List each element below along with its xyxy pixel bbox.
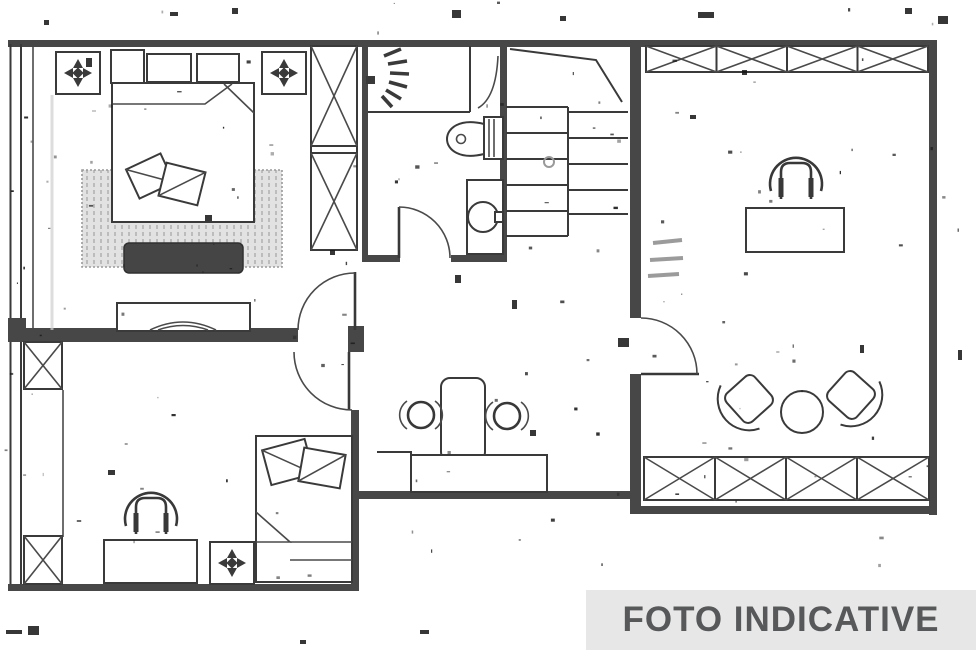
wall-right: [929, 40, 937, 515]
door-arc-icon: [298, 273, 355, 330]
wall-living-left-b: [630, 374, 641, 514]
room-staircase: [506, 49, 628, 236]
wardrobe-x-icon: [311, 46, 357, 250]
door-arc-icon: [399, 207, 450, 258]
window-x-strip-icon: [646, 46, 928, 72]
room-kitchenette: [377, 378, 547, 492]
stair-steps-icon: [506, 107, 628, 236]
bench-icon: [124, 243, 243, 273]
office-chair-icon: [770, 158, 822, 199]
foto-indicative-banner: FOTO INDICATIVE: [586, 590, 976, 650]
desk-icon: [104, 540, 197, 583]
office-chair-icon: [125, 493, 177, 534]
landing-break-line-icon: [510, 49, 622, 102]
room-bedroom-second: [24, 342, 352, 584]
room-bedroom-master: [52, 46, 357, 331]
window-x-post-icon: [24, 342, 62, 389]
desk-icon: [746, 208, 844, 252]
dresser-icon: [117, 303, 250, 331]
dimension-scribble: [648, 240, 683, 276]
wall-bathroom-bottom-a: [362, 255, 400, 262]
stool-icon: [486, 402, 529, 430]
wall-living-left-a: [630, 44, 641, 318]
armchair-icon: [706, 365, 782, 442]
shower-screen-icon: [478, 56, 498, 108]
round-side-table-icon: [781, 391, 823, 433]
room-living: [641, 46, 929, 500]
wall-bottom-left: [8, 584, 359, 591]
foto-indicative-label: FOTO INDICATIVE: [622, 600, 939, 640]
window-x-strip-icon: [644, 457, 929, 500]
ceiling-light-icon: [262, 52, 306, 94]
floor-plan-drawing: [0, 0, 976, 650]
pillow-icon: [147, 54, 191, 82]
wall-bottom-right: [637, 506, 937, 514]
shower-spray-icon: [366, 49, 409, 107]
counter-icon: [411, 455, 547, 492]
door-arc-icon: [294, 352, 352, 410]
door-arc-icon: [641, 318, 697, 374]
toilet-icon: [447, 117, 503, 159]
floor-plan-page: FOTO INDICATIVE: [0, 0, 976, 650]
stool-icon: [400, 401, 443, 429]
nightstand-icon: [111, 50, 144, 83]
pillow-icon: [197, 54, 239, 82]
ceiling-light-icon: [210, 542, 254, 584]
wall-step: [377, 452, 411, 491]
washbasin-icon: [467, 180, 503, 254]
window-x-post-icon: [24, 536, 62, 584]
ceiling-light-icon: [56, 52, 100, 94]
wall-bathroom-bottom-b: [451, 255, 507, 262]
high-table-icon: [441, 378, 485, 461]
armchair-icon: [817, 361, 893, 438]
room-bathroom: [366, 46, 503, 258]
